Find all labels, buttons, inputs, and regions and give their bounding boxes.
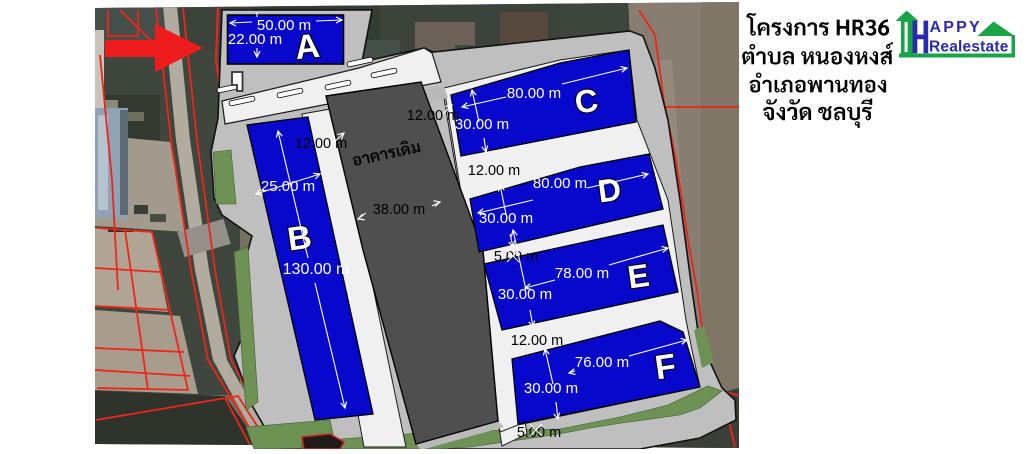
svg-text:30.00 m: 30.00 m — [524, 380, 578, 397]
svg-text:12.00 m: 12.00 m — [407, 108, 459, 124]
svg-text:30.00 m: 30.00 m — [479, 210, 533, 227]
svg-text:80.00 m: 80.00 m — [507, 85, 561, 102]
svg-text:38.00 m: 38.00 m — [373, 202, 425, 218]
svg-text:22.00 m: 22.00 m — [228, 31, 282, 48]
svg-text:Realestate: Realestate — [929, 39, 1009, 56]
svg-text:C: C — [573, 82, 601, 121]
svg-text:D: D — [596, 171, 624, 210]
svg-text:80.00 m: 80.00 m — [533, 175, 587, 192]
svg-text:130.00 m: 130.00 m — [283, 261, 350, 278]
svg-text:12.00 m: 12.00 m — [295, 136, 347, 152]
svg-text:76.00 m: 76.00 m — [575, 354, 629, 371]
svg-text:30.00 m: 30.00 m — [455, 116, 509, 133]
svg-text:25.00 m: 25.00 m — [261, 178, 315, 195]
svg-text:78.00 m: 78.00 m — [555, 265, 609, 282]
svg-text:12.00 m: 12.00 m — [511, 333, 563, 349]
svg-text:APPY: APPY — [930, 19, 982, 36]
svg-text:12.00 m: 12.00 m — [468, 163, 520, 179]
svg-text:30.00 m: 30.00 m — [498, 286, 552, 303]
svg-text:5.00 m: 5.00 m — [494, 249, 538, 265]
